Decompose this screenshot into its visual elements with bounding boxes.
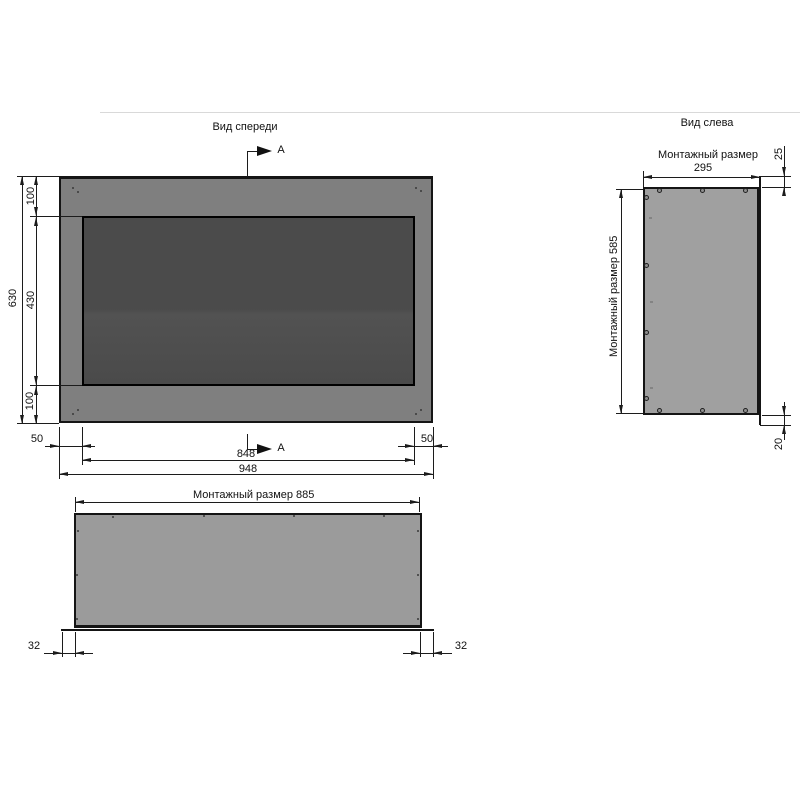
mounting-hole [657, 408, 662, 413]
dim-label-offset-top: 25 [773, 143, 785, 165]
bottom-view-body [74, 513, 422, 628]
dimension-arrow [405, 458, 414, 462]
dimension-arrow [782, 406, 786, 415]
mounting-hole [644, 330, 649, 335]
dimension-arrow [782, 187, 786, 196]
mounting-hole [644, 263, 649, 268]
dimension-arrow [782, 167, 786, 176]
section-label-bottom: A [274, 442, 288, 454]
dim-label-total-height: 630 [7, 283, 19, 313]
front-view-title: Вид спереди [203, 121, 287, 133]
screw-dot [293, 515, 295, 517]
dim-label-screen-width: 848 [233, 448, 259, 460]
screw-dot [72, 187, 74, 189]
dimension-arrow [20, 415, 24, 424]
extension-line [419, 497, 420, 512]
left-view-body [643, 187, 760, 415]
panel-mark [649, 217, 652, 219]
dim-label-offset-bottom: 20 [773, 433, 785, 455]
dimension-arrow [75, 651, 84, 655]
extension-line [760, 176, 791, 177]
screw-dot [77, 530, 79, 532]
dim-label-margin-left: 50 [26, 433, 48, 445]
section-arrow-icon [257, 444, 272, 454]
technical-drawing-canvas: Вид спереди Вид слева A A 630 100 430 10… [0, 0, 800, 800]
mounting-hole [657, 188, 662, 193]
mounting-hole [743, 188, 748, 193]
section-arrow-icon [257, 146, 272, 156]
dim-label-mounting-width: Монтажный размер 885 [193, 489, 303, 501]
dimension-arrow [20, 176, 24, 185]
dimension-arrow [433, 651, 442, 655]
dim-label-overhang-right: 32 [452, 640, 470, 652]
dim-line-mounting-height [621, 189, 622, 414]
screw-dot [112, 516, 114, 518]
screw-dot [420, 409, 422, 411]
dimension-arrow [411, 651, 420, 655]
dimension-arrow [34, 217, 38, 226]
screw-dot [72, 413, 74, 415]
dimension-arrow [424, 472, 433, 476]
screw-dot [417, 618, 419, 620]
section-line-top [247, 151, 248, 177]
dim-label-margin-right: 50 [416, 433, 438, 445]
dim-line-mounting-depth [643, 177, 760, 178]
screw-dot [77, 191, 79, 193]
dimension-arrow [53, 651, 62, 655]
dim-label-mounting-depth: Монтажный размер [658, 149, 748, 161]
screw-dot [383, 515, 385, 517]
screw-dot [415, 187, 417, 189]
extension-line [762, 415, 791, 416]
screw-dot [76, 574, 78, 576]
left-view-front-flange [759, 176, 761, 425]
screw-dot [420, 190, 422, 192]
dim-label-margin-top: 100 [25, 181, 37, 211]
screw-dot [415, 413, 417, 415]
panel-mark [650, 387, 653, 389]
dim-label-overhang-left: 32 [25, 640, 43, 652]
dimension-arrow [34, 415, 38, 424]
dimension-arrow [619, 189, 623, 198]
dimension-arrow [59, 472, 68, 476]
dim-line-total-height [22, 176, 23, 424]
dim-line-screen-width [82, 460, 414, 461]
screw-dot [417, 530, 419, 532]
dimension-arrow [75, 500, 84, 504]
dimension-arrow [34, 376, 38, 385]
section-line-top [247, 151, 257, 152]
dimension-arrow [50, 444, 59, 448]
dim-value-mounting-depth: 295 [683, 162, 723, 174]
extension-line [762, 187, 791, 188]
dimension-arrow [619, 405, 623, 414]
dimension-arrow [405, 444, 414, 448]
dimension-arrow [410, 500, 419, 504]
page-divider-line [100, 112, 800, 113]
mounting-hole [644, 195, 649, 200]
dim-label-total-width: 948 [235, 463, 261, 475]
mounting-hole [700, 188, 705, 193]
dimension-arrow [82, 444, 91, 448]
screw-dot [203, 515, 205, 517]
mounting-hole [700, 408, 705, 413]
panel-mark [650, 301, 653, 303]
screw-dot [76, 618, 78, 620]
section-label-top: A [274, 144, 288, 156]
dim-label-mounting-height: Монтажный размер 585 [608, 245, 620, 357]
left-view-title: Вид слева [674, 117, 740, 129]
dim-label-margin-bottom: 100 [24, 386, 36, 416]
dim-label-screen-height: 430 [25, 285, 37, 315]
extension-line [643, 171, 644, 187]
dimension-arrow [751, 175, 760, 179]
dim-line-overhang-left [44, 653, 93, 654]
screw-dot [77, 409, 79, 411]
screw-dot [417, 574, 419, 576]
dimension-arrow [82, 458, 91, 462]
mounting-hole [644, 396, 649, 401]
bottom-view-front-flange [61, 629, 434, 631]
extension-line [760, 425, 791, 426]
front-screen [82, 216, 415, 386]
dimension-arrow [643, 175, 652, 179]
dim-line-mounting-width [75, 502, 419, 503]
mounting-hole [743, 408, 748, 413]
